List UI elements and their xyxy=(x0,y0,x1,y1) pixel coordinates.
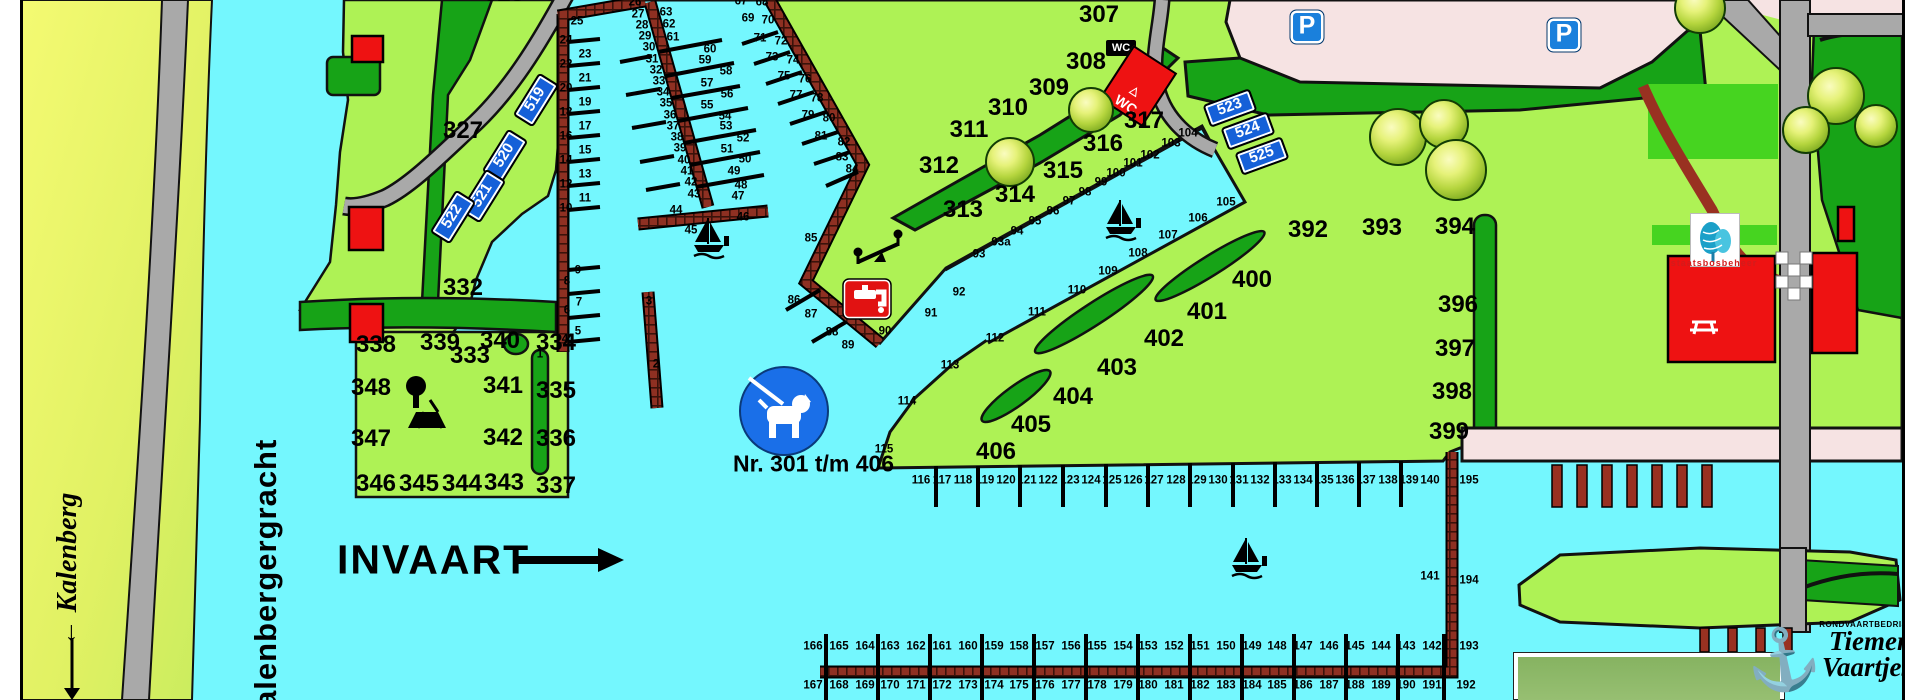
berth-label: 82 xyxy=(838,137,851,149)
berth-label: 89 xyxy=(842,340,855,352)
kalenbergergracht-label: Kalenbergergracht xyxy=(248,439,284,700)
map-margin-right xyxy=(1902,0,1920,700)
berth-label: 17 xyxy=(579,121,592,133)
berth-label: 152 xyxy=(1164,641,1183,653)
tiemen-label: Tiemen xyxy=(1742,629,1912,655)
building-main xyxy=(1668,256,1775,362)
plot-label: 394 xyxy=(1435,215,1475,239)
parking-sign: P xyxy=(1290,10,1325,45)
berth-label: 155 xyxy=(1087,641,1106,653)
berth-label: 104 xyxy=(1178,128,1197,140)
tree-icon xyxy=(1425,139,1487,201)
dogs-on-leash-sign xyxy=(737,364,831,458)
berth-label: 11 xyxy=(579,193,591,205)
berth-label: 168 xyxy=(829,680,848,692)
berth-label: 95 xyxy=(1029,216,1042,228)
berth-label: 85 xyxy=(805,233,818,245)
berth-label: 110 xyxy=(1068,285,1087,297)
berth-label: 113 xyxy=(941,360,960,372)
plot-label: 393 xyxy=(1362,216,1402,240)
berth-label: 174 xyxy=(984,680,1003,692)
berth-label: 56 xyxy=(721,89,734,101)
berth-label: 108 xyxy=(1128,248,1147,260)
berth-label: 153 xyxy=(1138,641,1157,653)
berth-label: 112 xyxy=(986,333,1005,345)
plot-label: 398 xyxy=(1432,380,1472,404)
berth-label: 90 xyxy=(879,326,892,338)
berth-label: 121 xyxy=(1017,475,1036,487)
grass-patch-1 xyxy=(1648,84,1778,159)
berth-label: 148 xyxy=(1267,641,1286,653)
berth-label: 78 xyxy=(811,93,824,105)
berth-label: 46 xyxy=(737,212,750,224)
berth-label: 15 xyxy=(579,145,592,157)
berth-label: 73 xyxy=(766,52,779,64)
berth-label: 147 xyxy=(1293,641,1312,653)
berth-label: 122 xyxy=(1038,475,1057,487)
berth-label: 1 xyxy=(537,349,543,361)
berth-label: 137 xyxy=(1356,475,1375,487)
berth-label: 58 xyxy=(720,66,733,78)
plot-label: 313 xyxy=(943,198,983,222)
berth-label: 59 xyxy=(699,55,712,67)
berth-label: 10 xyxy=(560,203,573,215)
berth-label: 53 xyxy=(720,121,733,133)
tree-icon xyxy=(1369,108,1427,166)
plot-label: 315 xyxy=(1043,159,1083,183)
berth-label: 49 xyxy=(728,166,741,178)
shed-1 xyxy=(352,36,383,62)
berth-label: 169 xyxy=(855,680,874,692)
plot-label: 342 xyxy=(483,426,523,450)
berth-label: 187 xyxy=(1319,680,1338,692)
berth-label: 62 xyxy=(663,19,676,31)
berth-label: 93a xyxy=(991,237,1010,249)
plot-label: 347 xyxy=(351,427,391,451)
berth-label: 190 xyxy=(1396,680,1415,692)
plot-label: 401 xyxy=(1187,300,1227,324)
berth-label: 126 xyxy=(1123,475,1142,487)
berth-label: 129 xyxy=(1187,475,1206,487)
berth-label: 138 xyxy=(1378,475,1397,487)
berth-label: 151 xyxy=(1190,641,1209,653)
berth-label: 128 xyxy=(1166,475,1185,487)
sailboat-icon-3 xyxy=(1232,538,1267,578)
berth-label: 149 xyxy=(1242,641,1261,653)
wc-person-icon: △ xyxy=(1128,85,1141,99)
berth-label: 118 xyxy=(954,475,973,487)
berth-label: 111 xyxy=(1028,307,1046,319)
berth-label: 176 xyxy=(1035,680,1054,692)
berth-label: 141 xyxy=(1420,571,1439,583)
berth-label: 163 xyxy=(880,641,899,653)
berth-label: 50 xyxy=(739,154,752,166)
berth-label: 109 xyxy=(1098,266,1117,278)
berth-label: 20 xyxy=(560,83,573,95)
berth-label: 5 xyxy=(575,326,581,338)
berth-label: 72 xyxy=(775,36,788,48)
berth-label: 9 xyxy=(575,265,581,277)
berth-label: 120 xyxy=(996,475,1015,487)
berth-label: 192 xyxy=(1456,680,1475,692)
plot-label: 314 xyxy=(995,183,1035,207)
berth-label: 181 xyxy=(1164,680,1183,692)
berth-label: 182 xyxy=(1190,680,1209,692)
plot-label: 308 xyxy=(1066,50,1106,74)
berth-label: 102 xyxy=(1140,150,1159,162)
plot-label: 310 xyxy=(988,96,1028,120)
berth-label: 86 xyxy=(788,295,801,307)
berth-label: 116 xyxy=(912,475,931,487)
plot-label: 311 xyxy=(950,118,989,142)
berth-label: 124 xyxy=(1081,475,1100,487)
berth-label: 115 xyxy=(875,444,894,456)
berth-label: 77 xyxy=(790,90,803,102)
map-margin-left xyxy=(0,0,23,700)
berth-label: 7 xyxy=(576,297,582,309)
berth-label: 125 xyxy=(1102,475,1121,487)
berth-label: 93 xyxy=(973,249,986,261)
berth-label: 189 xyxy=(1371,680,1390,692)
plot-label: 392 xyxy=(1288,218,1328,242)
berth-label: 75 xyxy=(778,71,791,83)
plot-label: 346 xyxy=(356,472,396,496)
berth-label: 156 xyxy=(1061,641,1080,653)
plot-label: 405 xyxy=(1011,413,1051,437)
plot-label: 317 xyxy=(1124,109,1164,133)
plot-label: 404 xyxy=(1053,385,1093,409)
berth-label: 80 xyxy=(823,113,836,125)
berth-label: 25 xyxy=(571,16,584,28)
berth-label: 8 xyxy=(564,276,570,288)
berth-label: 12 xyxy=(560,179,573,191)
berth-label: 144 xyxy=(1371,641,1390,653)
berth-label: 57 xyxy=(701,78,714,90)
berth-label: 83 xyxy=(836,152,849,164)
tree-icon xyxy=(1068,87,1114,133)
berth-label: 103 xyxy=(1161,138,1180,150)
berth-label: 55 xyxy=(701,100,714,112)
berth-label: 61 xyxy=(667,32,680,44)
berth-label: 4 xyxy=(562,334,568,346)
berth-dividers xyxy=(826,461,1444,700)
parking-sign: P xyxy=(1547,18,1582,53)
berth-label: 67 xyxy=(735,0,748,8)
plot-label: 316 xyxy=(1083,132,1123,156)
berth-label: 13 xyxy=(579,169,592,181)
plot-label: 327 xyxy=(443,119,483,143)
berth-label: 178 xyxy=(1087,680,1106,692)
plot-label: 343 xyxy=(484,471,524,495)
berth-label: 63 xyxy=(660,7,673,19)
berth-label: 123 xyxy=(1060,475,1079,487)
plot-label: 397 xyxy=(1435,337,1475,361)
shore-strip-southeast xyxy=(1462,428,1902,461)
berth-label: 154 xyxy=(1113,641,1132,653)
berth-label: 18 xyxy=(560,107,573,119)
berth-label: 91 xyxy=(925,308,938,320)
berth-label: 79 xyxy=(802,110,815,122)
berth-label: 127 xyxy=(1144,475,1163,487)
plot-label: 312 xyxy=(919,154,959,178)
plot-label: 396 xyxy=(1438,293,1478,317)
road-east-branch xyxy=(1808,14,1904,36)
plot-label: 309 xyxy=(1029,76,1069,100)
plot-label: 332 xyxy=(443,276,483,300)
road-east-vertical xyxy=(1780,0,1810,632)
berth-label: 97 xyxy=(1063,196,1076,208)
plot-label: 341 xyxy=(483,374,523,398)
berth-label: 87 xyxy=(805,309,818,321)
berth-label: 131 xyxy=(1229,475,1248,487)
berth-label: 164 xyxy=(855,641,874,653)
berth-label: 70 xyxy=(762,15,775,27)
berth-label: 2 xyxy=(653,359,659,371)
berth-label: 117 xyxy=(933,475,952,487)
plot-label: 348 xyxy=(351,376,391,400)
building-right xyxy=(1812,253,1857,353)
berth-label: 140 xyxy=(1420,475,1439,487)
hedge-island-right xyxy=(532,350,548,474)
plot-label: 325 xyxy=(484,0,524,6)
berth-label: 145 xyxy=(1345,641,1364,653)
berth-label: 193 xyxy=(1459,641,1478,653)
berth-label: 92 xyxy=(953,287,966,299)
map-geometry xyxy=(0,0,1920,700)
berth-label: 179 xyxy=(1113,680,1132,692)
berth-label: 119 xyxy=(976,475,995,487)
berth-label: 52 xyxy=(737,133,750,145)
berth-label: 30 xyxy=(643,42,656,54)
berth-label: 183 xyxy=(1216,680,1235,692)
berth-label: 100 xyxy=(1106,168,1125,180)
berth-label: 96 xyxy=(1047,206,1060,218)
berth-label: 136 xyxy=(1335,475,1354,487)
berth-label: 157 xyxy=(1035,641,1054,653)
berth-label: 74 xyxy=(787,55,800,67)
berth-label: 14 xyxy=(560,155,573,167)
plot-label: 344 xyxy=(442,472,482,496)
berth-label: 160 xyxy=(958,641,977,653)
berth-label: 23 xyxy=(579,49,592,61)
berth-label: 191 xyxy=(1422,680,1441,692)
building-small xyxy=(1838,207,1854,241)
berth-label: 107 xyxy=(1158,230,1177,242)
berth-label: 188 xyxy=(1345,680,1364,692)
berth-label: 71 xyxy=(754,33,767,45)
berth-label: 143 xyxy=(1396,641,1415,653)
berth-label: 195 xyxy=(1459,475,1478,487)
berth-label: 186 xyxy=(1293,680,1312,692)
berth-label: 84 xyxy=(846,164,859,176)
plot-label: 402 xyxy=(1144,327,1184,351)
tree-icon xyxy=(1782,106,1830,154)
berth-label: 159 xyxy=(984,641,1003,653)
berth-label: 44 xyxy=(670,205,683,217)
berth-label: 42 xyxy=(685,177,698,189)
berth-label: 171 xyxy=(906,680,925,692)
plot-label: 338 xyxy=(356,333,396,357)
staatsbosbeheer-label: staatsbosbeheer xyxy=(1671,258,1758,268)
plot-label: 337 xyxy=(536,474,576,498)
berth-label: 39 xyxy=(674,143,687,155)
berth-label: 132 xyxy=(1250,475,1269,487)
berth-label: 135 xyxy=(1314,475,1333,487)
berth-label: 21 xyxy=(579,73,592,85)
berth-label: 81 xyxy=(815,131,828,143)
berth-label: 139 xyxy=(1399,475,1418,487)
tree-icon xyxy=(985,137,1035,187)
water-tap-sign xyxy=(843,279,891,319)
berth-label: 24 xyxy=(560,35,573,47)
berth-label: 134 xyxy=(1293,475,1312,487)
berth-label: 162 xyxy=(906,641,925,653)
berth-label: 177 xyxy=(1061,680,1080,692)
kalenberg-label: ← Kalenberg xyxy=(52,493,84,648)
berth-label: 19 xyxy=(579,97,592,109)
plot-label: 335 xyxy=(536,379,576,403)
berth-label: 3 xyxy=(646,296,652,308)
berth-label: 172 xyxy=(932,680,951,692)
invaart-label: INVAART xyxy=(337,537,530,584)
berth-label: 194 xyxy=(1459,575,1478,587)
berth-label: 167 xyxy=(803,680,822,692)
berth-label: 45 xyxy=(685,225,698,237)
berth-label: 105 xyxy=(1216,197,1235,209)
berth-label: 184 xyxy=(1242,680,1261,692)
berth-label: 35 xyxy=(660,98,673,110)
shed-2 xyxy=(349,207,383,250)
berth-label: 22 xyxy=(560,59,573,71)
berth-label: 161 xyxy=(932,641,951,653)
berth-label: 173 xyxy=(958,680,977,692)
tree-icon xyxy=(1854,104,1898,148)
berth-label: 106 xyxy=(1188,213,1207,225)
berth-label: 150 xyxy=(1216,641,1235,653)
berth-label: 114 xyxy=(898,396,917,408)
marina-map: ← Kalenberg Kalenbergergracht INVAART Nr… xyxy=(0,0,1920,700)
plot-label: 403 xyxy=(1097,356,1137,380)
hedge-394-strip xyxy=(1474,215,1496,437)
berth-label: 16 xyxy=(560,131,573,143)
invaart-arrow xyxy=(518,548,624,572)
berth-label: 170 xyxy=(880,680,899,692)
plot-label: 400 xyxy=(1232,268,1272,292)
plot-label: 339 xyxy=(420,331,460,355)
berth-label: 43 xyxy=(688,189,701,201)
plot-label: 345 xyxy=(399,472,439,496)
berth-label: 88 xyxy=(826,327,839,339)
berth-label: 98 xyxy=(1079,187,1092,199)
tiemen-vaartjes-logo: RONDVAARTBEDRIJF Tiemen Vaartjes xyxy=(1742,620,1912,680)
berth-label: 69 xyxy=(742,13,755,25)
berth-label: 47 xyxy=(732,191,745,203)
berth-label: 6 xyxy=(564,305,570,317)
berth-label: 133 xyxy=(1272,475,1291,487)
berth-label: 142 xyxy=(1422,641,1441,653)
berth-label: 165 xyxy=(829,641,848,653)
plot-label: 340 xyxy=(480,329,520,353)
berth-label: 51 xyxy=(721,144,734,156)
berth-label: 68 xyxy=(756,0,769,9)
vaartjes-label: Vaartjes xyxy=(1742,655,1912,681)
berth-label: 180 xyxy=(1138,680,1157,692)
plot-label: 406 xyxy=(976,440,1016,464)
berth-label: 158 xyxy=(1009,641,1028,653)
plot-label: 307 xyxy=(1079,3,1119,27)
berth-label: 76 xyxy=(799,74,812,86)
berth-label: 175 xyxy=(1009,680,1028,692)
berth-label: 94 xyxy=(1011,226,1024,238)
berth-label: 185 xyxy=(1267,680,1286,692)
berth-label: 146 xyxy=(1319,641,1338,653)
berth-label: 166 xyxy=(803,641,822,653)
plot-label: 336 xyxy=(536,427,576,451)
berth-label: 130 xyxy=(1208,475,1227,487)
plot-label: 399 xyxy=(1429,420,1469,444)
